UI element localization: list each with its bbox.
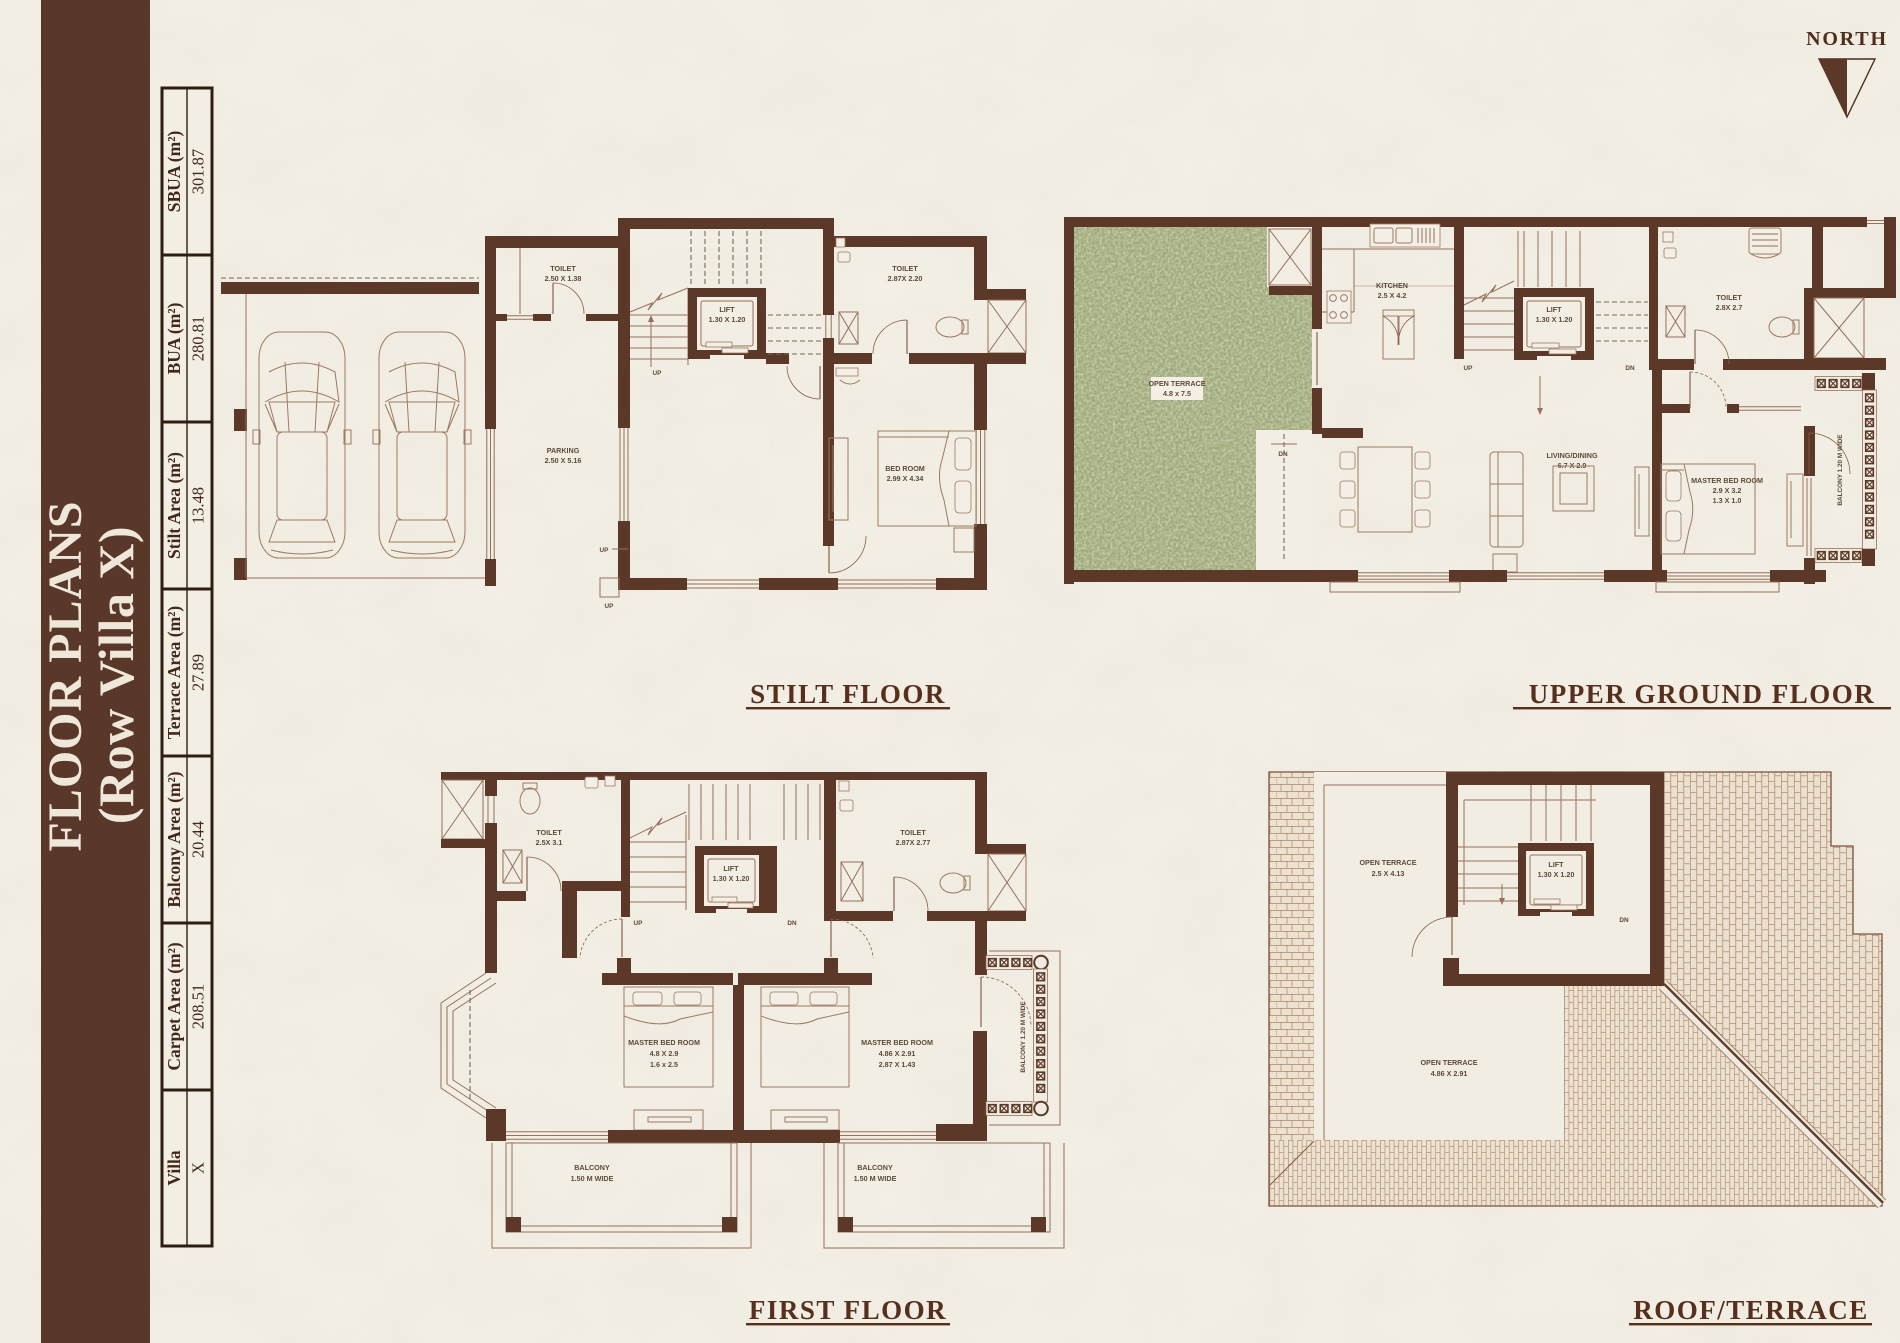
svg-text:OPEN TERRACE: OPEN TERRACE [1420, 1058, 1477, 1067]
svg-text:LIFT: LIFT [723, 864, 739, 873]
svg-text:UP: UP [600, 547, 610, 554]
svg-text:UP: UP [605, 603, 615, 610]
svg-text:TOILET: TOILET [892, 264, 918, 273]
svg-text:208.51: 208.51 [189, 984, 208, 1029]
svg-text:TOILET: TOILET [900, 828, 926, 837]
svg-text:4.8 x 7.5: 4.8 x 7.5 [1163, 389, 1191, 398]
svg-text:X: X [189, 1162, 208, 1174]
svg-text:BALCONY: BALCONY [574, 1163, 610, 1172]
svg-text:27.89: 27.89 [189, 654, 208, 691]
svg-text:13.48: 13.48 [189, 487, 208, 524]
svg-text:ROOF/TERRACE: ROOF/TERRACE [1633, 1295, 1869, 1325]
svg-text:20.44: 20.44 [189, 821, 208, 858]
svg-text:1.30 X 1.20: 1.30 X 1.20 [709, 315, 746, 324]
svg-text:2.50 X 5.16: 2.50 X 5.16 [545, 456, 582, 465]
svg-text:2.8X 2.7: 2.8X 2.7 [1716, 303, 1743, 312]
svg-text:NORTH: NORTH [1806, 28, 1888, 50]
svg-text:2.87X 2.20: 2.87X 2.20 [888, 274, 923, 283]
svg-text:1.30 X 1.20: 1.30 X 1.20 [1538, 870, 1575, 879]
svg-text:LIVING/DINING: LIVING/DINING [1546, 451, 1598, 460]
svg-text:LIFT: LIFT [1546, 305, 1562, 314]
svg-text:BALCONY: BALCONY [857, 1163, 893, 1172]
svg-text:OPEN TERRACE: OPEN TERRACE [1359, 858, 1416, 867]
svg-text:1.50 M WIDE: 1.50 M WIDE [854, 1174, 897, 1183]
svg-text:BED ROOM: BED ROOM [885, 464, 925, 473]
svg-text:UPPER GROUND FLOOR: UPPER GROUND FLOOR [1529, 679, 1876, 709]
svg-text:2.9 X 3.2: 2.9 X 3.2 [1713, 486, 1742, 495]
svg-text:2.87 X 1.43: 2.87 X 1.43 [879, 1060, 916, 1069]
svg-text:BUA (m²): BUA (m²) [164, 302, 184, 374]
svg-text:2.50 X 1.38: 2.50 X 1.38 [545, 274, 582, 283]
svg-text:OPEN TERRACE: OPEN TERRACE [1148, 379, 1205, 388]
svg-text:BALCONY 1.20 M WIDE: BALCONY 1.20 M WIDE [1837, 434, 1844, 506]
svg-text:BALCONY 1.20 M WIDE: BALCONY 1.20 M WIDE [1020, 1001, 1027, 1073]
svg-text:LIFT: LIFT [719, 305, 735, 314]
svg-text:2.5X 3.1: 2.5X 3.1 [536, 838, 563, 847]
svg-text:Terrace Area (m²): Terrace Area (m²) [164, 606, 184, 740]
svg-text:1.30 X 1.20: 1.30 X 1.20 [713, 874, 750, 883]
svg-text:2.87X 2.77: 2.87X 2.77 [896, 838, 931, 847]
svg-text:DN: DN [1625, 365, 1635, 372]
svg-text:TOILET: TOILET [536, 828, 562, 837]
svg-text:4.86 X 2.91: 4.86 X 2.91 [1431, 1069, 1468, 1078]
svg-text:FLOOR PLANS: FLOOR PLANS [39, 500, 92, 851]
svg-text:MASTER BED ROOM: MASTER BED ROOM [1691, 476, 1763, 485]
svg-text:UP: UP [1464, 365, 1474, 372]
svg-text:DN: DN [1619, 917, 1629, 924]
svg-text:SBUA (m²): SBUA (m²) [164, 131, 184, 213]
svg-text:PARKING: PARKING [547, 446, 580, 455]
svg-text:1.6 x 2.5: 1.6 x 2.5 [650, 1060, 678, 1069]
svg-text:UP: UP [653, 370, 663, 377]
svg-text:2.5 X 4.2: 2.5 X 4.2 [1378, 291, 1407, 300]
svg-text:TOILET: TOILET [550, 264, 576, 273]
svg-text:1.50 M WIDE: 1.50 M WIDE [571, 1174, 614, 1183]
svg-text:2.5 X 4.13: 2.5 X 4.13 [1372, 869, 1405, 878]
svg-text:MASTER BED ROOM: MASTER BED ROOM [861, 1038, 933, 1047]
svg-text:280.81: 280.81 [189, 316, 208, 361]
svg-text:1.3 X 1.0: 1.3 X 1.0 [1713, 496, 1742, 505]
svg-text:4.8 X 2.9: 4.8 X 2.9 [650, 1049, 679, 1058]
svg-text:MASTER BED ROOM: MASTER BED ROOM [628, 1038, 700, 1047]
svg-text:DN: DN [787, 920, 797, 927]
svg-text:KITCHEN: KITCHEN [1376, 281, 1408, 290]
svg-text:Stilt Area (m²): Stilt Area (m²) [164, 452, 184, 559]
svg-text:STILT FLOOR: STILT FLOOR [750, 679, 946, 709]
svg-text:Carpet Area (m²): Carpet Area (m²) [164, 942, 184, 1071]
svg-text:1.30 X 1.20: 1.30 X 1.20 [1536, 315, 1573, 324]
svg-text:TOILET: TOILET [1716, 293, 1742, 302]
svg-text:2.99 X 4.34: 2.99 X 4.34 [887, 474, 924, 483]
svg-text:FIRST FLOOR: FIRST FLOOR [749, 1295, 947, 1325]
svg-text:4.86 X 2.91: 4.86 X 2.91 [879, 1049, 916, 1058]
svg-text:Villa: Villa [164, 1150, 184, 1186]
svg-text:301.87: 301.87 [189, 149, 208, 194]
svg-text:Balcony Area (m²): Balcony Area (m²) [164, 771, 184, 907]
svg-text:DN: DN [1278, 451, 1288, 458]
svg-text:UP: UP [634, 920, 644, 927]
svg-text:LIFT: LIFT [1548, 860, 1564, 869]
svg-text:(Row Villa X): (Row Villa X) [88, 526, 144, 824]
